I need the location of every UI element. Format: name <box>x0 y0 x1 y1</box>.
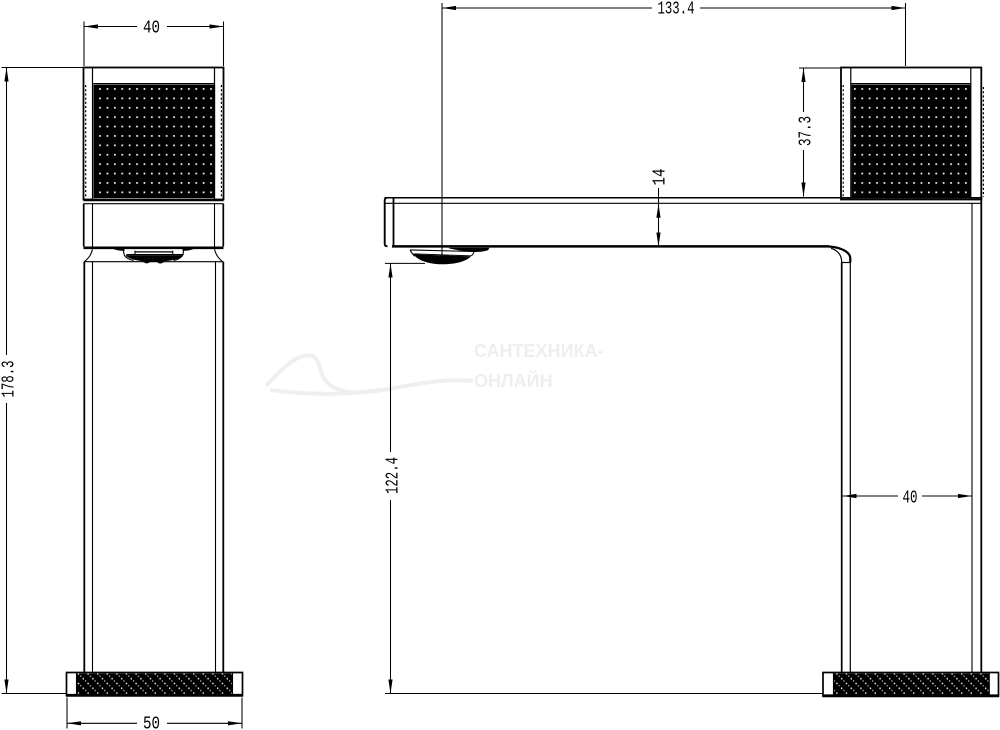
svg-text:37.3: 37.3 <box>797 116 817 146</box>
svg-text:САНТЕХНИКА-: САНТЕХНИКА- <box>474 341 603 361</box>
svg-text:178.3: 178.3 <box>0 361 20 398</box>
svg-text:133.4: 133.4 <box>658 0 695 20</box>
svg-text:40: 40 <box>143 19 160 39</box>
svg-text:122.4: 122.4 <box>384 457 404 494</box>
svg-text:ОНЛАЙН: ОНЛАЙН <box>474 370 553 391</box>
svg-text:14: 14 <box>651 169 671 186</box>
svg-text:50: 50 <box>143 715 160 730</box>
svg-text:40: 40 <box>903 489 918 509</box>
